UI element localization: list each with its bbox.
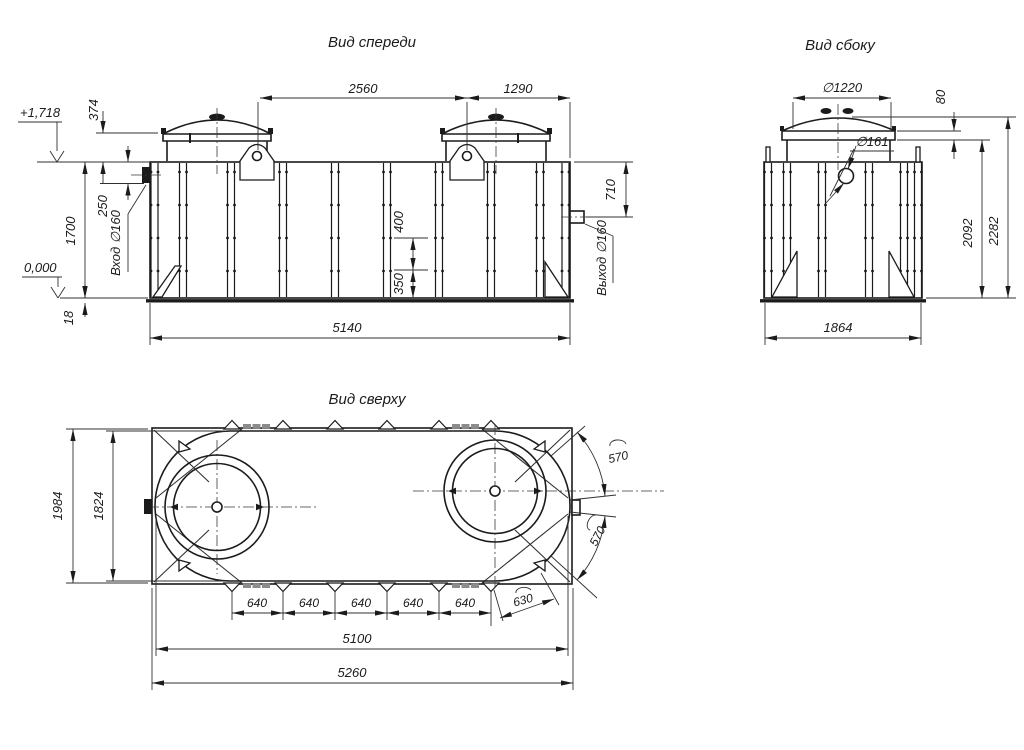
front-tank-shell — [150, 162, 570, 298]
top-view: Вид сверху — [50, 391, 664, 690]
side-view: Вид сбоку ∅161 — [760, 37, 1016, 345]
lifting-lug-left — [240, 145, 274, 181]
hatch-handle-icon — [821, 108, 832, 114]
dim-1220: ∅1220 — [822, 80, 863, 95]
dim-1984: 1984 — [50, 492, 65, 521]
hatch-handle-icon — [843, 108, 854, 114]
dim-80: 80 — [933, 89, 948, 104]
dim-570-lower: 570 — [587, 524, 609, 549]
dim-1290: 1290 — [504, 81, 534, 96]
dim-1864: 1864 — [824, 320, 853, 335]
dim-161: ∅161 — [855, 134, 888, 149]
dim-640-1: 640 — [247, 596, 267, 610]
dim-1700: 1700 — [63, 216, 78, 246]
dim-1824: 1824 — [91, 492, 106, 521]
dim-5260: 5260 — [338, 665, 368, 680]
tank-drawing: Вид спереди — [0, 0, 1024, 750]
elevation-mark-zero: 0,000 — [22, 260, 65, 298]
level-top: +1,718 — [20, 105, 61, 120]
dim-18: 18 — [61, 310, 76, 325]
dim-374: 374 — [86, 99, 101, 121]
dim-5140: 5140 — [333, 320, 363, 335]
dim-640-3: 640 — [351, 596, 371, 610]
dim-2092: 2092 — [960, 218, 975, 249]
front-view-title: Вид спереди — [328, 34, 417, 51]
elevation-mark-top: +1,718 — [18, 105, 64, 162]
dim-640-4: 640 — [403, 596, 423, 610]
dim-640-2: 640 — [299, 596, 319, 610]
dim-710: 710 — [603, 178, 618, 200]
inlet-stub — [144, 499, 152, 514]
level-zero: 0,000 — [24, 260, 57, 275]
front-view: Вид спереди — [18, 34, 633, 345]
dim-2560: 2560 — [348, 81, 379, 96]
dim-400: 400 — [391, 210, 406, 232]
dim-640-5: 640 — [455, 596, 475, 610]
dim-2282: 2282 — [986, 216, 1001, 247]
dim-5100: 5100 — [343, 631, 373, 646]
dim-350: 350 — [391, 272, 406, 294]
side-view-title: Вид сбоку — [805, 37, 876, 54]
technical-drawing-page: Вид спереди — [0, 0, 1024, 750]
dim-570-upper: 570 — [607, 448, 630, 466]
top-view-title: Вид сверху — [329, 391, 407, 408]
inlet-label: Вход ∅160 — [108, 209, 123, 275]
